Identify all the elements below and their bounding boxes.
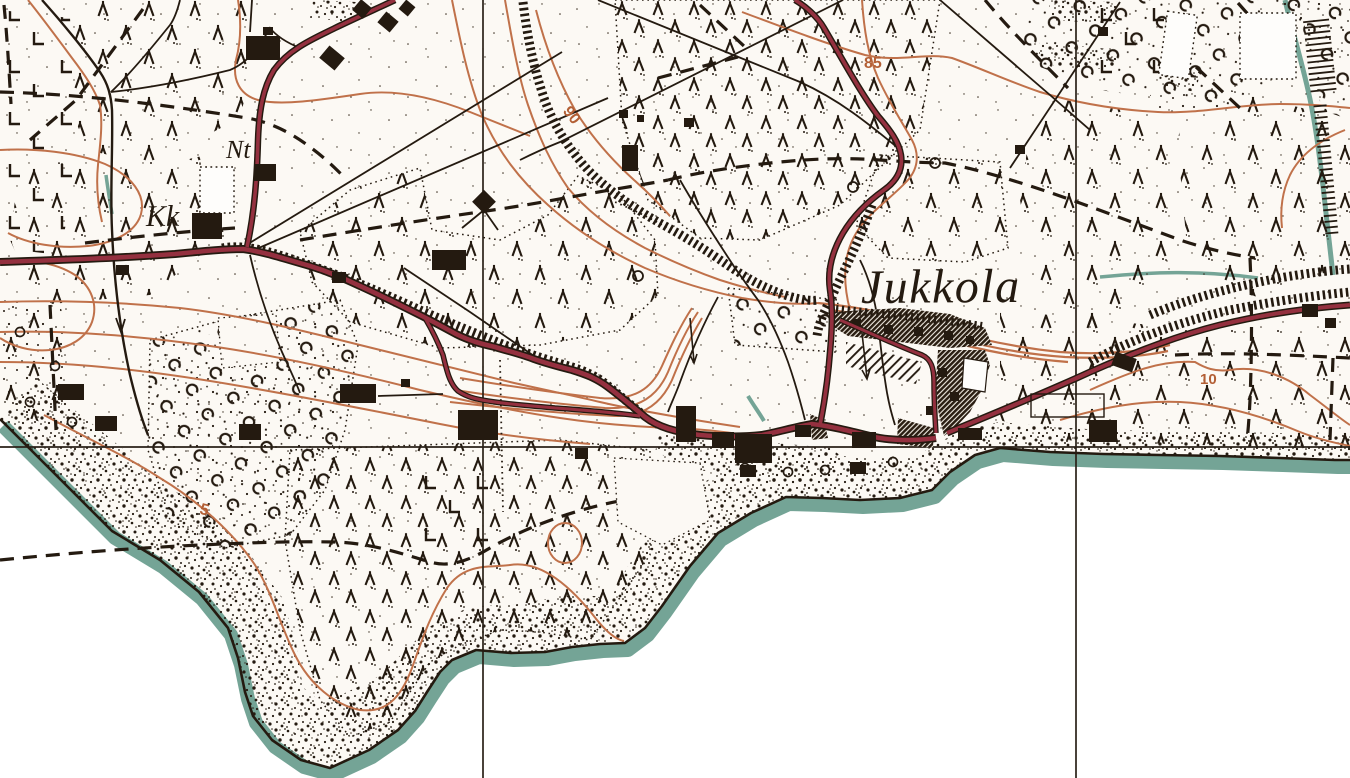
svg-text:Kk: Kk — [145, 200, 180, 233]
svg-text:Nt: Nt — [225, 135, 252, 164]
svg-text:10: 10 — [1200, 371, 1217, 388]
svg-text:85: 85 — [864, 55, 882, 72]
svg-text:Jukkola: Jukkola — [861, 260, 1021, 314]
